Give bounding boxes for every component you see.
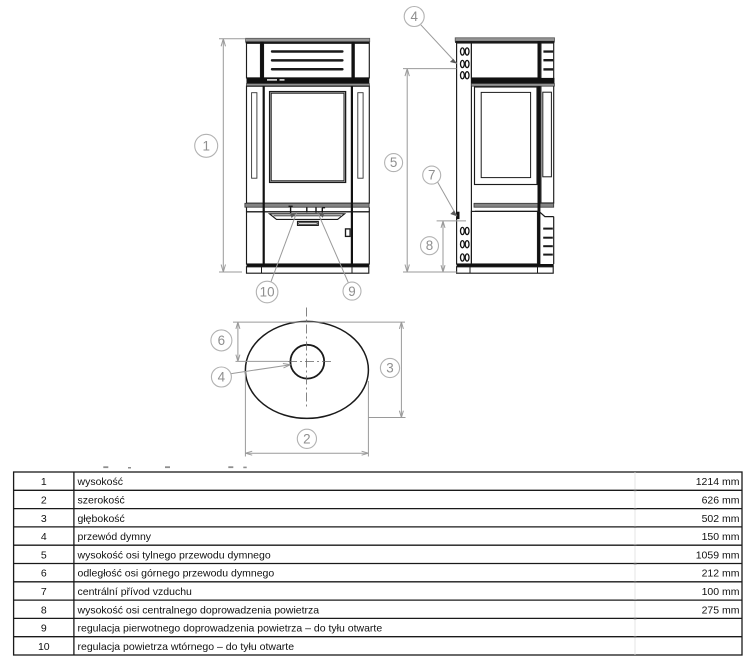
svg-text:6: 6 [218, 333, 225, 348]
svg-text:odległość osi górnego przewodu: odległość osi górnego przewodu dymnego [78, 568, 275, 580]
svg-text:wysokość osi tylnego przewodu: wysokość osi tylnego przewodu dymnego [77, 549, 271, 561]
svg-text:4: 4 [410, 9, 418, 24]
svg-text:2: 2 [303, 431, 310, 446]
svg-text:100 mm: 100 mm [702, 586, 740, 598]
svg-text:5: 5 [41, 549, 47, 561]
svg-text:2: 2 [41, 495, 47, 507]
svg-text:przewód dymny: przewód dymny [78, 531, 152, 543]
svg-text:9: 9 [348, 284, 355, 299]
svg-text:regulacja pierwotnego doprowad: regulacja pierwotnego doprowadzenia powi… [78, 623, 383, 635]
svg-text:9: 9 [41, 623, 47, 635]
svg-text:150 mm: 150 mm [702, 531, 740, 543]
svg-text:6: 6 [41, 568, 47, 580]
svg-text:głębokość: głębokość [78, 513, 125, 525]
svg-text:centrální přívod vzduchu: centrální přívod vzduchu [78, 586, 193, 598]
svg-text:1059 mm: 1059 mm [696, 549, 740, 561]
svg-text:7: 7 [428, 168, 435, 183]
svg-text:1: 1 [41, 476, 47, 488]
svg-text:8: 8 [41, 604, 47, 616]
svg-text:1214 mm: 1214 mm [696, 476, 740, 488]
svg-text:szerokość: szerokość [78, 495, 125, 507]
svg-text:5: 5 [390, 155, 397, 170]
svg-text:275 mm: 275 mm [702, 604, 740, 616]
svg-text:regulacja powietrza wtórnego –: regulacja powietrza wtórnego – do tyłu o… [78, 641, 295, 653]
svg-text:10: 10 [38, 641, 50, 653]
svg-text:wysokość osi centralnego dopro: wysokość osi centralnego doprowadzenia p… [77, 604, 320, 616]
svg-text:626 mm: 626 mm [702, 495, 740, 507]
svg-text:10: 10 [260, 285, 275, 300]
svg-text:4: 4 [41, 531, 47, 543]
svg-text:wysokość: wysokość [77, 476, 124, 488]
svg-text:3: 3 [386, 361, 393, 376]
svg-text:3: 3 [41, 513, 47, 525]
svg-text:1: 1 [202, 138, 209, 153]
svg-text:212 mm: 212 mm [702, 568, 740, 580]
svg-text:502 mm: 502 mm [702, 513, 740, 525]
svg-text:4: 4 [218, 370, 226, 385]
svg-text:7: 7 [41, 586, 47, 598]
svg-text:8: 8 [426, 238, 433, 253]
